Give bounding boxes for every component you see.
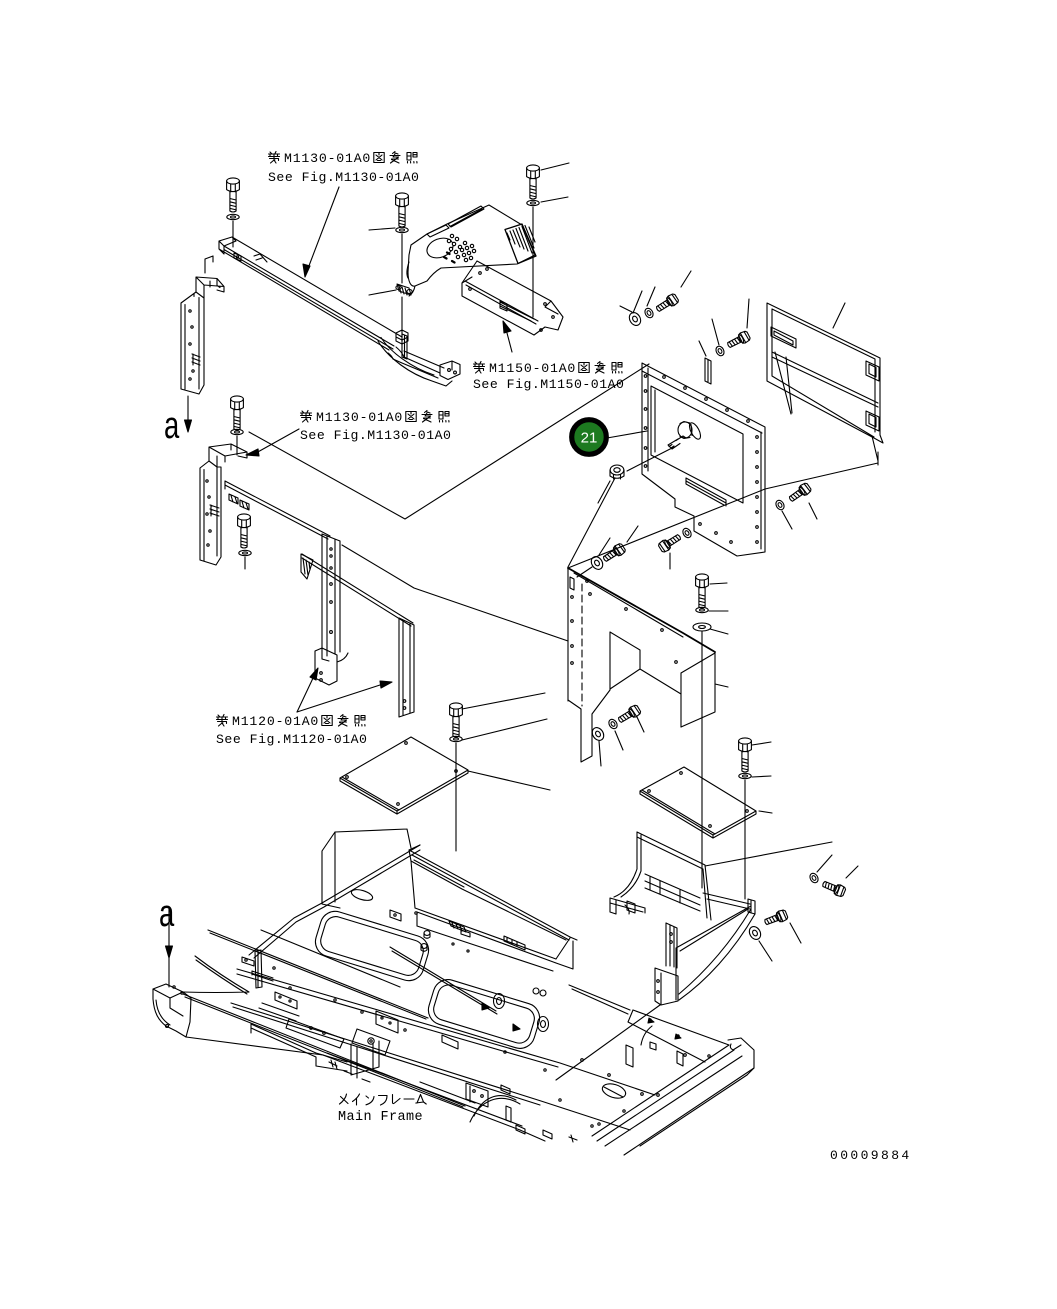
svg-text:M1130-01A0: M1130-01A0 [316,410,403,425]
svg-text:M1130-01A0: M1130-01A0 [284,151,371,166]
svg-text:Main Frame: Main Frame [338,1110,423,1125]
svg-text:See Fig.M1130-01A0: See Fig.M1130-01A0 [268,170,419,185]
svg-text:See Fig.M1130-01A0: See Fig.M1130-01A0 [300,428,451,443]
svg-text:M1150-01A0: M1150-01A0 [489,361,576,376]
svg-text:a: a [159,893,175,935]
svg-text:M1120-01A0: M1120-01A0 [232,714,319,729]
svg-text:See Fig.M1120-01A0: See Fig.M1120-01A0 [216,732,367,747]
svg-text:00009884: 00009884 [830,1148,912,1163]
svg-text:a: a [164,405,180,447]
svg-text:21: 21 [581,430,598,447]
svg-text:See Fig.M1150-01A0: See Fig.M1150-01A0 [473,377,624,392]
